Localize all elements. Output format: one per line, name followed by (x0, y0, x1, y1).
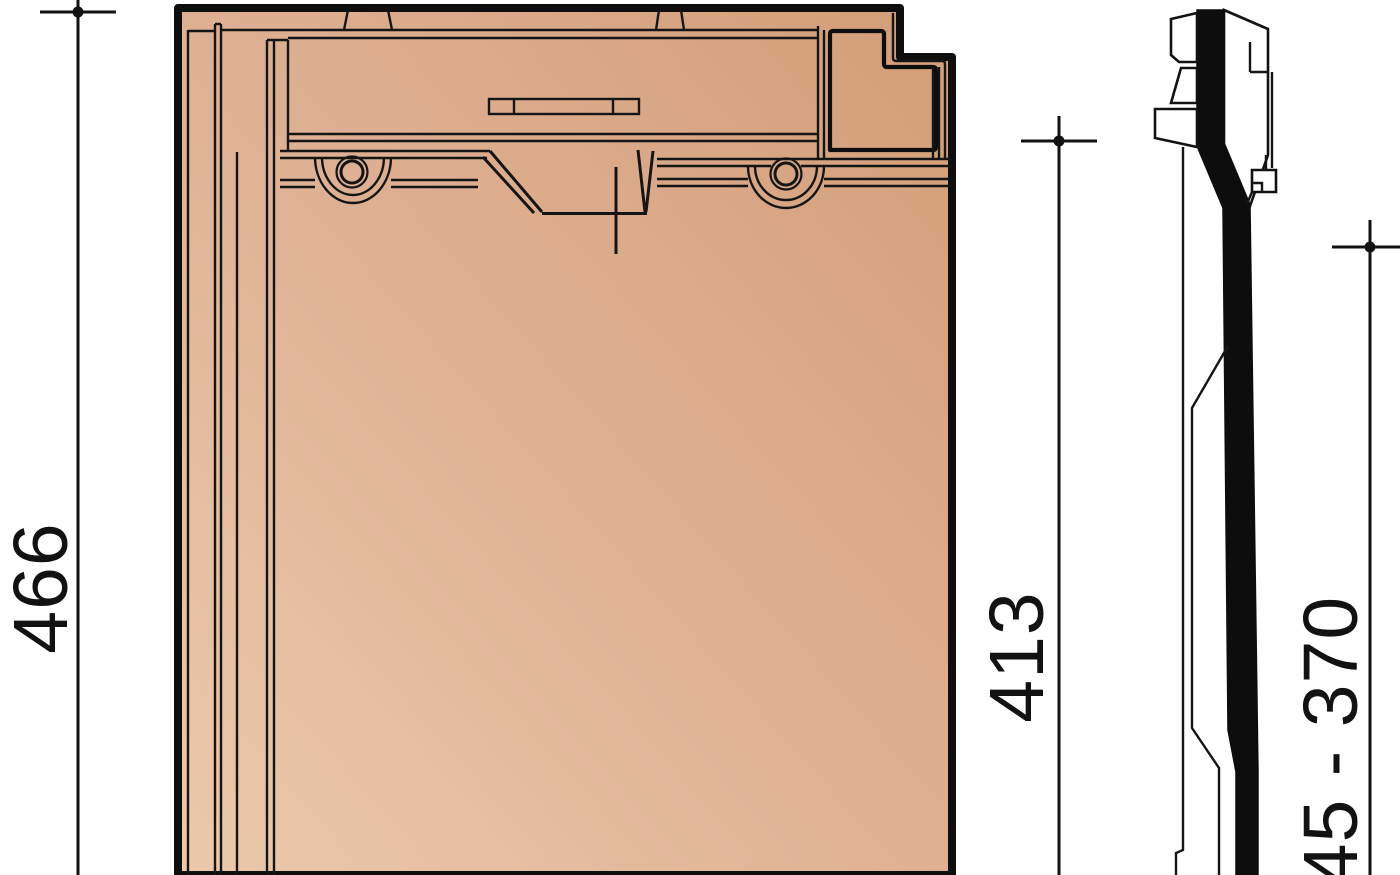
dimension-overall-length: 466 (0, 0, 116, 875)
technical-drawing-canvas: 466 413 345 - 370 (0, 0, 1400, 875)
profile-hanging-lugs (1155, 13, 1197, 147)
dim-label-413: 413 (974, 591, 1060, 722)
tile-front-view (178, 8, 952, 875)
tile-outline (178, 8, 952, 875)
dim-label-466: 466 (0, 522, 84, 653)
dim-tick-dot (1054, 136, 1065, 147)
dimension-cover-length: 413 (974, 116, 1097, 875)
tile-side-profile (1155, 10, 1276, 875)
dimension-batten-range: 345 - 370 (1288, 220, 1400, 875)
dim-label-345-370: 345 - 370 (1288, 596, 1374, 875)
roof-tile-drawing: 466 413 345 - 370 (0, 0, 1400, 875)
dim-tick-dot (73, 7, 84, 18)
profile-back-lines (1176, 147, 1228, 875)
dim-tick-dot (1365, 242, 1376, 253)
